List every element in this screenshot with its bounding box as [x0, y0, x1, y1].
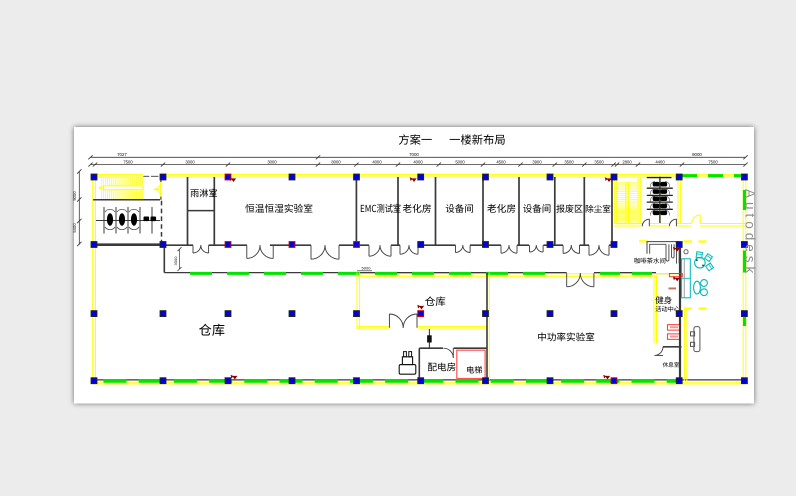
- svg-text:Autodesk: Autodesk: [743, 189, 758, 277]
- svg-text:3000: 3000: [185, 159, 195, 164]
- svg-text:9000: 9000: [72, 191, 77, 201]
- svg-text:8000: 8000: [331, 159, 341, 164]
- svg-text:3000: 3000: [173, 256, 178, 266]
- svg-text:7027: 7027: [117, 152, 127, 157]
- svg-text:2800: 2800: [622, 159, 632, 164]
- svg-text:3500: 3500: [564, 159, 574, 164]
- svg-text:3500: 3500: [594, 159, 604, 164]
- svg-text:4000: 4000: [372, 159, 382, 164]
- svg-text:4500: 4500: [496, 159, 506, 164]
- svg-text:3900: 3900: [532, 159, 542, 164]
- svg-text:4400: 4400: [655, 159, 665, 164]
- svg-text:7500: 7500: [708, 159, 718, 164]
- svg-text:5400: 5400: [72, 223, 77, 233]
- svg-text:7000: 7000: [409, 152, 419, 157]
- svg-text:4000: 4000: [413, 159, 423, 164]
- svg-text:5000: 5000: [455, 159, 465, 164]
- svg-text:3000: 3000: [267, 159, 277, 164]
- svg-text:7500: 7500: [123, 159, 133, 164]
- svg-text:9000: 9000: [692, 152, 702, 157]
- svg-text:5000: 5000: [362, 265, 372, 270]
